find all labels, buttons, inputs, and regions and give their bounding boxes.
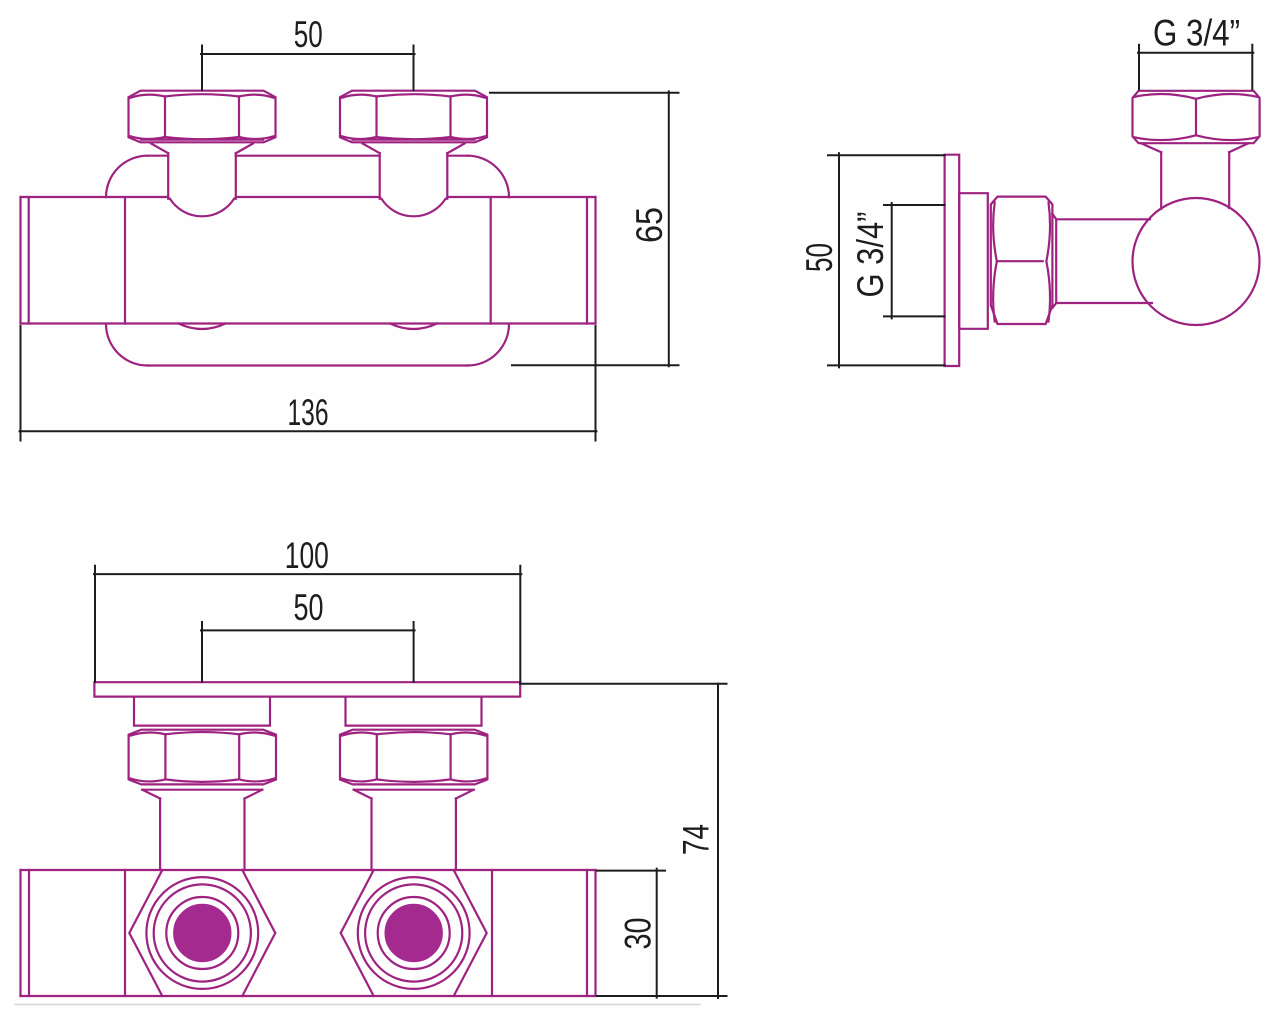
svg-text:100: 100 <box>285 535 329 576</box>
svg-text:G 3/4”: G 3/4” <box>850 212 891 298</box>
svg-text:50: 50 <box>799 243 840 272</box>
svg-text:G 3/4”: G 3/4” <box>1153 13 1240 54</box>
svg-text:65: 65 <box>629 207 670 243</box>
svg-text:50: 50 <box>294 14 323 55</box>
svg-text:74: 74 <box>676 824 717 855</box>
svg-text:30: 30 <box>618 918 659 950</box>
svg-text:50: 50 <box>294 587 324 628</box>
svg-text:136: 136 <box>288 392 329 433</box>
